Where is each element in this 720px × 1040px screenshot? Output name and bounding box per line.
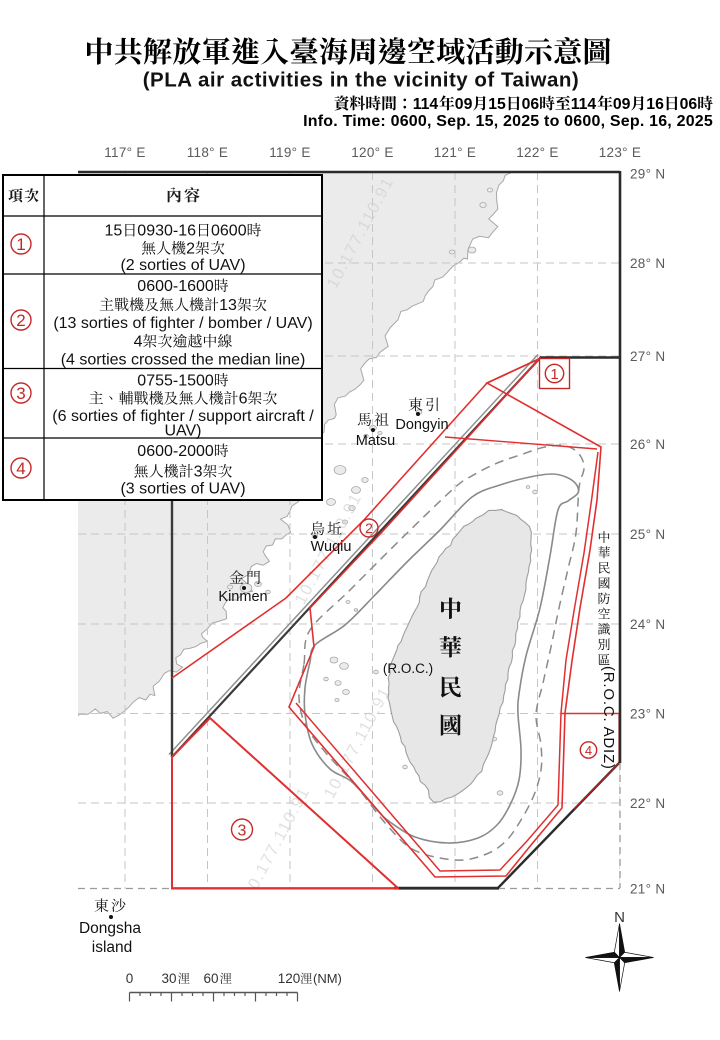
svg-text:(4 sorties crossed the median: (4 sorties crossed the median line) [61,352,306,369]
svg-text:119° E: 119° E [269,145,310,160]
svg-text:2: 2 [186,241,195,258]
svg-text:(PLA air activities in the vic: (PLA air activities in the vicinity of T… [143,69,580,92]
svg-text:Dongyin: Dongyin [395,417,448,433]
svg-text:3: 3 [16,384,25,403]
svg-text:UAV): UAV) [164,423,201,440]
svg-text:2: 2 [365,520,373,536]
svg-text:21° N: 21° N [630,882,665,897]
svg-text:Info. Time: 0600, Sep. 15, 202: Info. Time: 0600, Sep. 15, 2025 to 0600,… [303,113,713,130]
svg-text:23° N: 23° N [630,707,665,722]
svg-text:1: 1 [550,366,558,383]
svg-text:1: 1 [16,235,25,254]
svg-text:09: 09 [613,96,631,113]
svg-text:0600-2000: 0600-2000 [137,443,214,460]
svg-text:4: 4 [585,743,592,758]
svg-text:29° N: 29° N [630,167,665,182]
svg-text:30: 30 [161,971,176,986]
svg-text:N: N [614,909,625,926]
svg-text:28° N: 28° N [630,256,665,271]
svg-text:(2 sorties of UAV): (2 sorties of UAV) [120,257,245,274]
svg-text:(R.O.C. ADIZ): (R.O.C. ADIZ) [600,666,617,770]
svg-text:122° E: 122° E [516,145,558,160]
svg-text:27° N: 27° N [630,349,665,364]
svg-text:26° N: 26° N [630,437,665,452]
svg-text:0930-16: 0930-16 [137,223,196,240]
svg-text:09: 09 [455,96,473,113]
svg-text:24° N: 24° N [630,617,665,632]
svg-text:0600: 0600 [211,223,247,240]
svg-text:(NM): (NM) [313,971,342,986]
svg-text:Wuqiu: Wuqiu [311,539,352,555]
svg-text:2: 2 [16,311,25,330]
svg-text:120° E: 120° E [351,145,393,160]
svg-text:118° E: 118° E [187,145,228,160]
svg-text:0: 0 [126,971,134,986]
svg-text:6: 6 [239,391,248,408]
svg-text:114: 114 [571,96,597,113]
svg-text:06: 06 [680,96,698,113]
svg-text:3: 3 [238,822,247,839]
svg-text:13: 13 [219,297,237,314]
svg-text:(13 sorties of fighter / bombe: (13 sorties of fighter / bomber / UAV) [53,315,312,332]
svg-text:15: 15 [105,223,123,240]
svg-text:121° E: 121° E [434,145,476,160]
svg-text:15: 15 [488,96,506,113]
svg-text:0755-1500: 0755-1500 [137,373,214,390]
svg-text:120: 120 [278,971,301,986]
svg-text:(3 sorties of UAV): (3 sorties of UAV) [120,481,245,498]
svg-text:0600-1600: 0600-1600 [137,278,214,295]
svg-text:Dongsha: Dongsha [79,920,141,937]
svg-text:60: 60 [203,971,218,986]
svg-text:Matsu: Matsu [356,433,396,449]
svg-text:25° N: 25° N [630,527,665,542]
svg-text:4: 4 [16,459,25,478]
svg-text:3: 3 [194,464,203,481]
svg-text:114: 114 [413,96,439,113]
svg-text:island: island [92,939,133,956]
svg-text:06: 06 [522,96,540,113]
svg-text:22° N: 22° N [630,796,665,811]
svg-text:Kinmen: Kinmen [218,589,267,605]
svg-text:(R.O.C.): (R.O.C.) [383,661,433,676]
svg-text:16: 16 [646,96,664,113]
svg-text:117° E: 117° E [104,145,145,160]
svg-text:123° E: 123° E [599,145,641,160]
svg-text:4: 4 [134,334,143,351]
